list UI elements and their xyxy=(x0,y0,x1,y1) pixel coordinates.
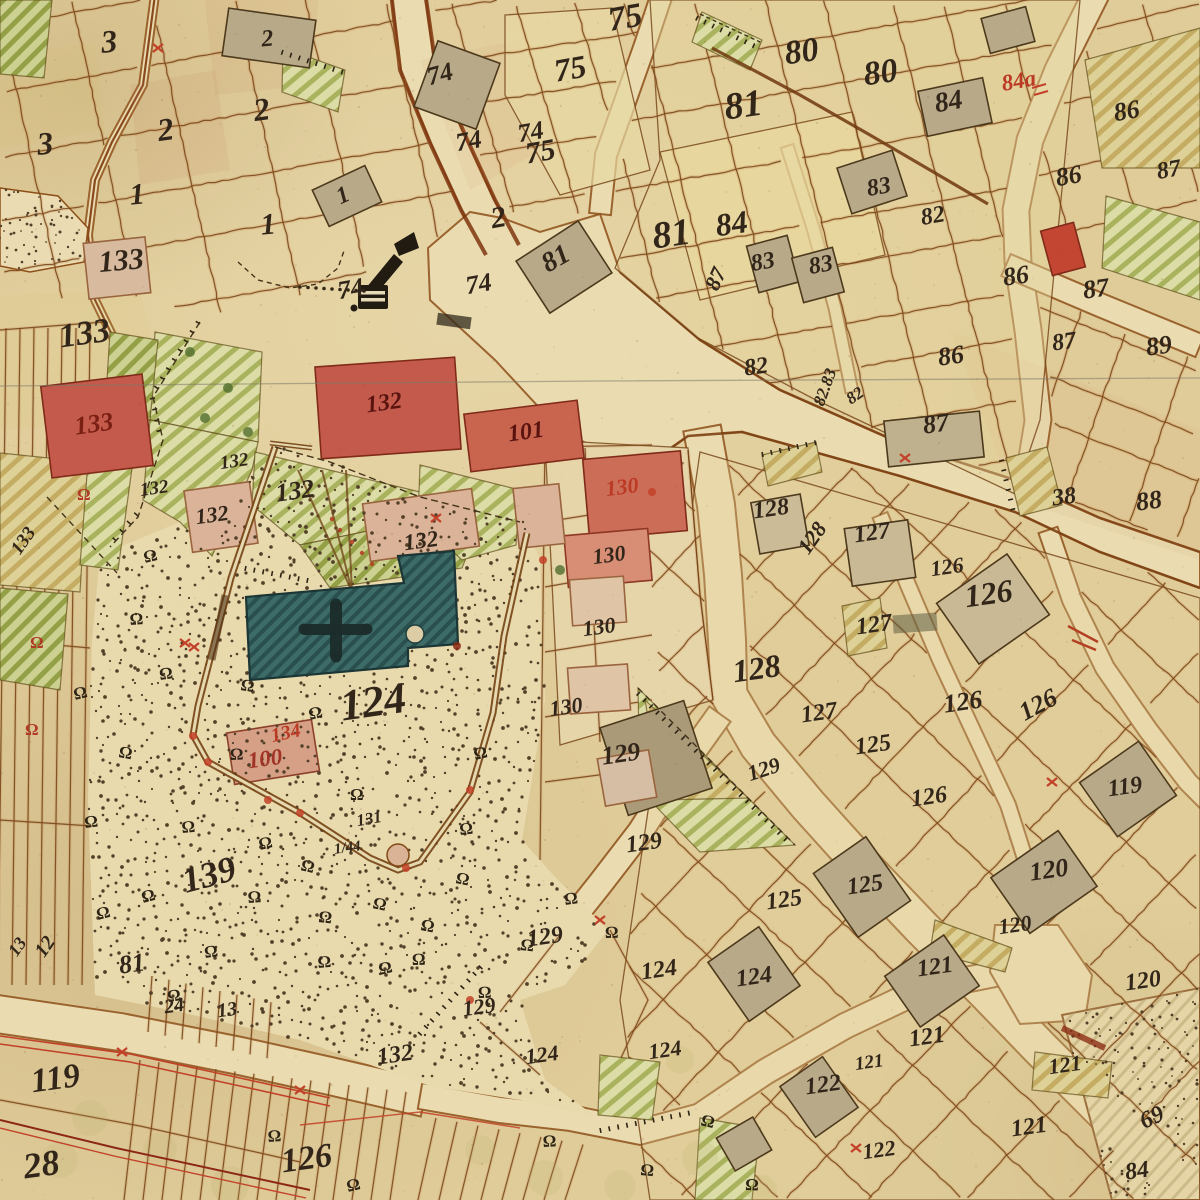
svg-text:132: 132 xyxy=(219,449,251,474)
svg-text:128: 128 xyxy=(751,494,790,525)
svg-text:84: 84 xyxy=(932,84,965,119)
svg-text:129: 129 xyxy=(461,992,497,1021)
svg-text:86: 86 xyxy=(1111,94,1142,127)
svg-text:132: 132 xyxy=(402,526,440,556)
svg-text:126: 126 xyxy=(929,552,965,581)
svg-text:124: 124 xyxy=(524,1040,560,1069)
svg-text:133: 133 xyxy=(72,407,115,441)
svg-text:84: 84 xyxy=(713,203,750,243)
svg-text:127: 127 xyxy=(799,698,839,729)
svg-text:3: 3 xyxy=(35,124,55,161)
svg-text:130: 130 xyxy=(591,540,627,569)
svg-text:126: 126 xyxy=(941,685,984,719)
svg-text:81: 81 xyxy=(117,947,147,979)
svg-text:130: 130 xyxy=(548,692,584,721)
svg-text:38: 38 xyxy=(1049,483,1077,512)
svg-text:1: 1 xyxy=(259,207,277,241)
svg-text:119: 119 xyxy=(1106,772,1144,803)
svg-text:87: 87 xyxy=(1081,272,1112,304)
svg-text:120: 120 xyxy=(997,910,1033,939)
svg-text:122: 122 xyxy=(803,1070,842,1101)
svg-text:126: 126 xyxy=(279,1137,335,1181)
svg-text:24: 24 xyxy=(162,994,186,1019)
svg-text:121: 121 xyxy=(1047,1050,1083,1079)
svg-text:83: 83 xyxy=(865,172,893,202)
svg-text:75: 75 xyxy=(551,48,589,89)
svg-text:126: 126 xyxy=(909,782,948,813)
svg-text:83: 83 xyxy=(749,247,777,277)
svg-text:2: 2 xyxy=(259,26,274,53)
svg-text:130: 130 xyxy=(581,612,617,641)
svg-text:121: 121 xyxy=(1009,1112,1048,1143)
svg-text:125: 125 xyxy=(764,885,803,916)
svg-text:100: 100 xyxy=(246,744,284,774)
svg-text:132: 132 xyxy=(139,476,171,501)
svg-text:1: 1 xyxy=(128,177,146,211)
svg-text:89: 89 xyxy=(1144,329,1174,361)
svg-text:128: 128 xyxy=(730,647,783,689)
svg-text:80: 80 xyxy=(782,31,821,72)
svg-text:13: 13 xyxy=(216,998,239,1023)
svg-text:82: 82 xyxy=(919,201,947,231)
svg-text:101: 101 xyxy=(506,417,545,448)
svg-text:132: 132 xyxy=(364,388,403,419)
svg-text:74: 74 xyxy=(335,272,366,305)
svg-text:127: 127 xyxy=(852,518,892,549)
svg-text:75: 75 xyxy=(605,0,645,39)
svg-text:133: 133 xyxy=(57,312,113,356)
svg-text:133: 133 xyxy=(97,242,145,279)
svg-text:80: 80 xyxy=(861,52,900,93)
svg-text:74: 74 xyxy=(463,267,494,300)
svg-text:129: 129 xyxy=(525,922,564,953)
svg-text:121: 121 xyxy=(907,1022,946,1053)
svg-text:88: 88 xyxy=(1134,484,1164,516)
svg-text:87: 87 xyxy=(921,407,952,439)
svg-text:121: 121 xyxy=(854,1050,885,1075)
svg-text:125: 125 xyxy=(853,730,892,761)
svg-text:3: 3 xyxy=(99,22,119,59)
svg-text:122: 122 xyxy=(861,1135,897,1164)
svg-text:124: 124 xyxy=(647,1035,683,1064)
svg-text:129: 129 xyxy=(599,737,642,771)
svg-text:28: 28 xyxy=(20,1142,62,1187)
svg-text:127: 127 xyxy=(854,610,894,641)
svg-text:82: 82 xyxy=(742,353,769,382)
svg-text:83: 83 xyxy=(807,250,835,280)
svg-text:132: 132 xyxy=(194,500,230,529)
svg-text:124: 124 xyxy=(639,955,678,986)
svg-text:132: 132 xyxy=(273,474,316,508)
svg-text:86: 86 xyxy=(1053,159,1084,192)
svg-text:132: 132 xyxy=(375,1040,414,1071)
svg-text:120: 120 xyxy=(1123,966,1162,997)
svg-text:125: 125 xyxy=(845,870,884,901)
svg-text:75: 75 xyxy=(523,133,558,171)
svg-text:74: 74 xyxy=(453,124,484,157)
svg-text:130: 130 xyxy=(604,472,640,501)
svg-text:120: 120 xyxy=(1027,853,1070,887)
svg-text:121: 121 xyxy=(915,952,954,983)
svg-text:87: 87 xyxy=(1050,327,1078,356)
svg-text:126: 126 xyxy=(962,572,1015,614)
svg-text:124: 124 xyxy=(337,673,409,731)
svg-text:86: 86 xyxy=(1001,259,1031,291)
svg-text:129: 129 xyxy=(624,828,663,859)
svg-text:81: 81 xyxy=(650,211,693,258)
svg-text:84: 84 xyxy=(1123,1157,1150,1186)
svg-text:86: 86 xyxy=(936,339,966,371)
svg-text:81: 81 xyxy=(722,82,765,129)
svg-text:124: 124 xyxy=(734,962,773,993)
svg-text:119: 119 xyxy=(29,1057,83,1100)
